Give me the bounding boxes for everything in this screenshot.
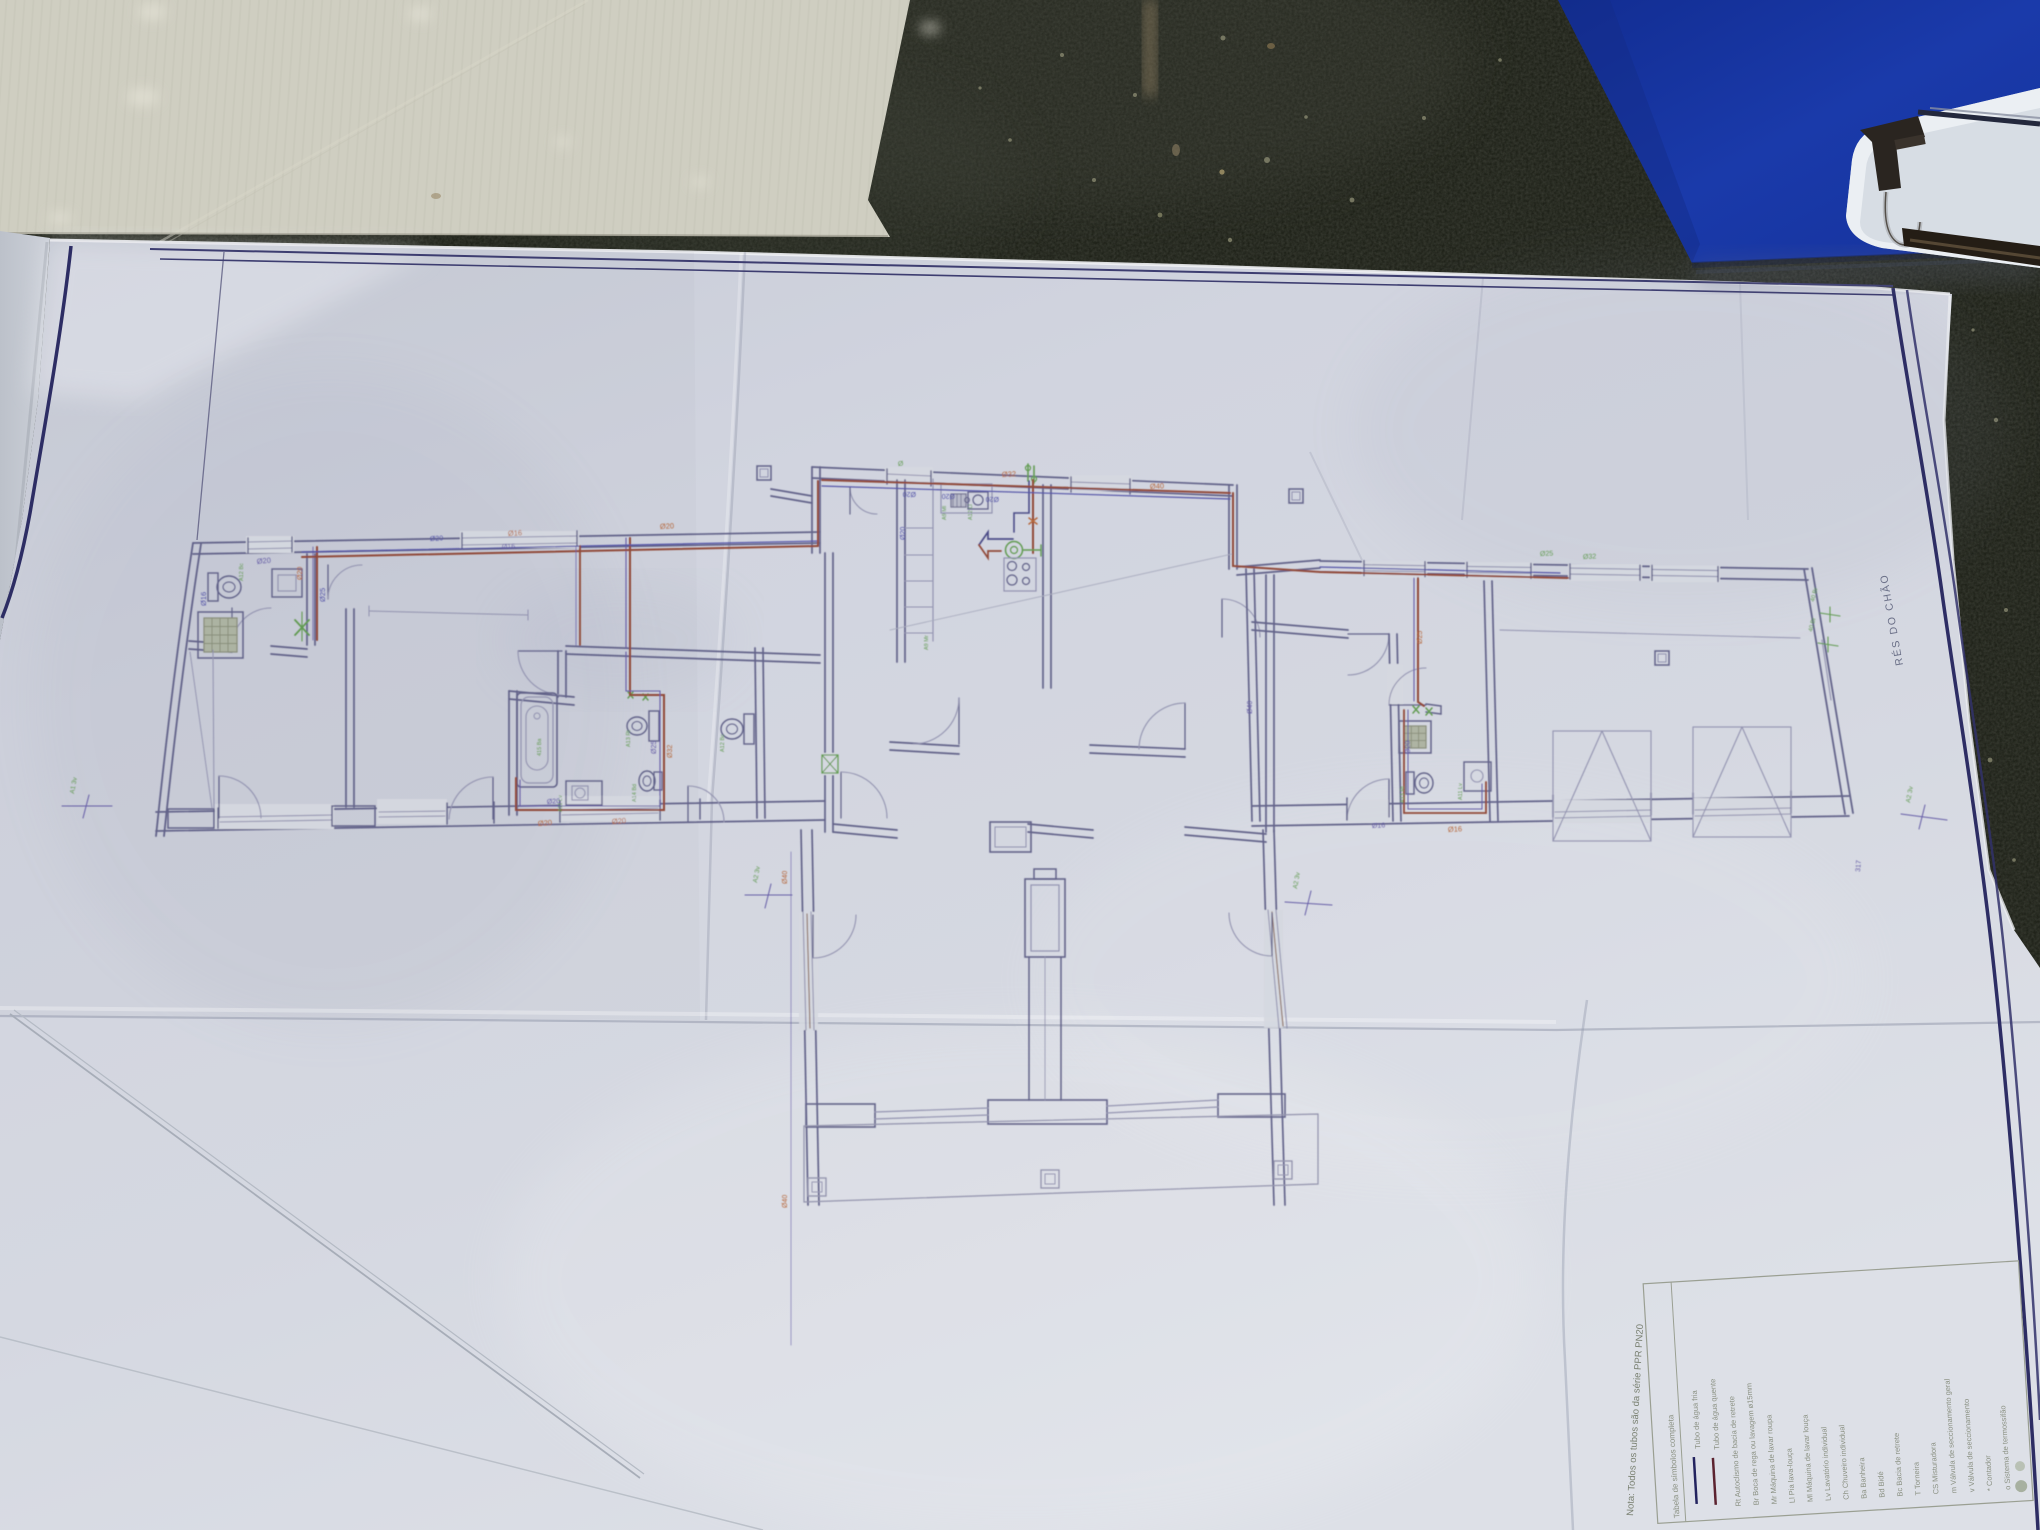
svg-text:Ø32: Ø32 bbox=[667, 745, 674, 758]
svg-text:Ø20: Ø20 bbox=[660, 521, 675, 531]
svg-text:Ø40: Ø40 bbox=[782, 871, 789, 884]
svg-text:Ø16: Ø16 bbox=[199, 592, 208, 606]
svg-text:A13 Rt: A13 Rt bbox=[1400, 786, 1406, 803]
svg-text:A14 Bd: A14 Bd bbox=[632, 784, 638, 802]
svg-text:A11 Lv: A11 Lv bbox=[1458, 783, 1464, 800]
svg-text:Ø16: Ø16 bbox=[1448, 824, 1463, 834]
svg-text:A9 Ml: A9 Ml bbox=[942, 506, 948, 520]
svg-text:A12 Ll: A12 Ll bbox=[968, 504, 974, 520]
svg-text:Ø20: Ø20 bbox=[903, 490, 916, 497]
svg-text:Ø25: Ø25 bbox=[651, 741, 658, 754]
svg-text:Ø25: Ø25 bbox=[318, 588, 327, 602]
svg-text:A9 Mr: A9 Mr bbox=[924, 635, 930, 650]
svg-text:A13 Rt: A13 Rt bbox=[626, 730, 632, 747]
svg-text:A11 Lv: A11 Lv bbox=[558, 795, 564, 812]
svg-text:Ø20: Ø20 bbox=[612, 816, 627, 826]
svg-text:Ø40: Ø40 bbox=[1247, 701, 1254, 714]
svg-text:Ø20: Ø20 bbox=[900, 527, 907, 540]
svg-text:Ø20: Ø20 bbox=[256, 556, 271, 566]
svg-text:A12 Bc: A12 Bc bbox=[720, 734, 726, 752]
svg-text:Ø16: Ø16 bbox=[508, 528, 523, 538]
svg-text:Ø20: Ø20 bbox=[430, 535, 444, 543]
svg-text:415 Ba: 415 Ba bbox=[537, 738, 543, 756]
svg-text:Ø20: Ø20 bbox=[942, 492, 955, 499]
svg-text:Ø20: Ø20 bbox=[297, 567, 304, 580]
svg-text:Ø32: Ø32 bbox=[1002, 469, 1017, 479]
svg-text:Ø16: Ø16 bbox=[502, 543, 516, 551]
svg-text:Ø25: Ø25 bbox=[1417, 631, 1424, 644]
svg-text:Ø20: Ø20 bbox=[1405, 741, 1412, 754]
svg-text:Ø40: Ø40 bbox=[782, 1195, 789, 1208]
svg-text:Ø: Ø bbox=[898, 461, 904, 468]
svg-text:317: 317 bbox=[1855, 860, 1863, 872]
svg-text:Ø32: Ø32 bbox=[1583, 554, 1597, 561]
svg-text:Ø16: Ø16 bbox=[1372, 822, 1386, 830]
svg-text:Ø25: Ø25 bbox=[1540, 551, 1554, 558]
svg-text:Ø20: Ø20 bbox=[538, 818, 553, 828]
svg-text:Ø20: Ø20 bbox=[986, 495, 999, 502]
svg-text:A12 Bc: A12 Bc bbox=[239, 563, 245, 581]
svg-text:Bd Bidé: Bd Bidé bbox=[1876, 1471, 1887, 1498]
